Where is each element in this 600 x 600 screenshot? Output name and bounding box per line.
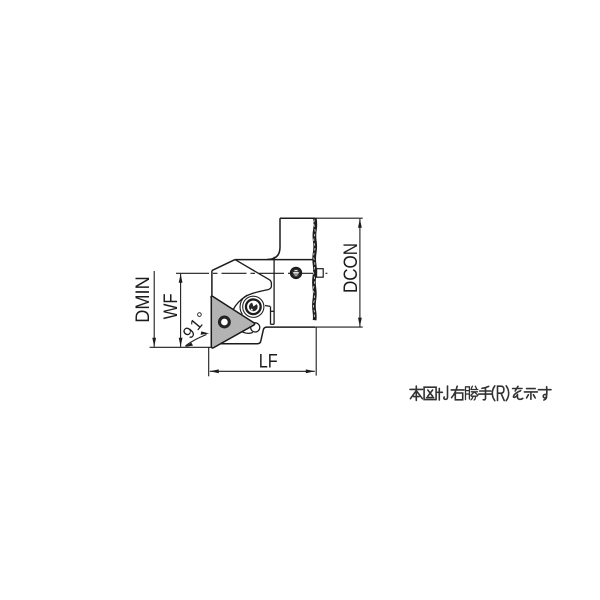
svg-text:WF: WF <box>161 293 182 319</box>
svg-text:DCON: DCON <box>341 243 362 293</box>
svg-text:DMIN: DMIN <box>133 276 154 323</box>
svg-text:LF: LF <box>259 352 278 373</box>
